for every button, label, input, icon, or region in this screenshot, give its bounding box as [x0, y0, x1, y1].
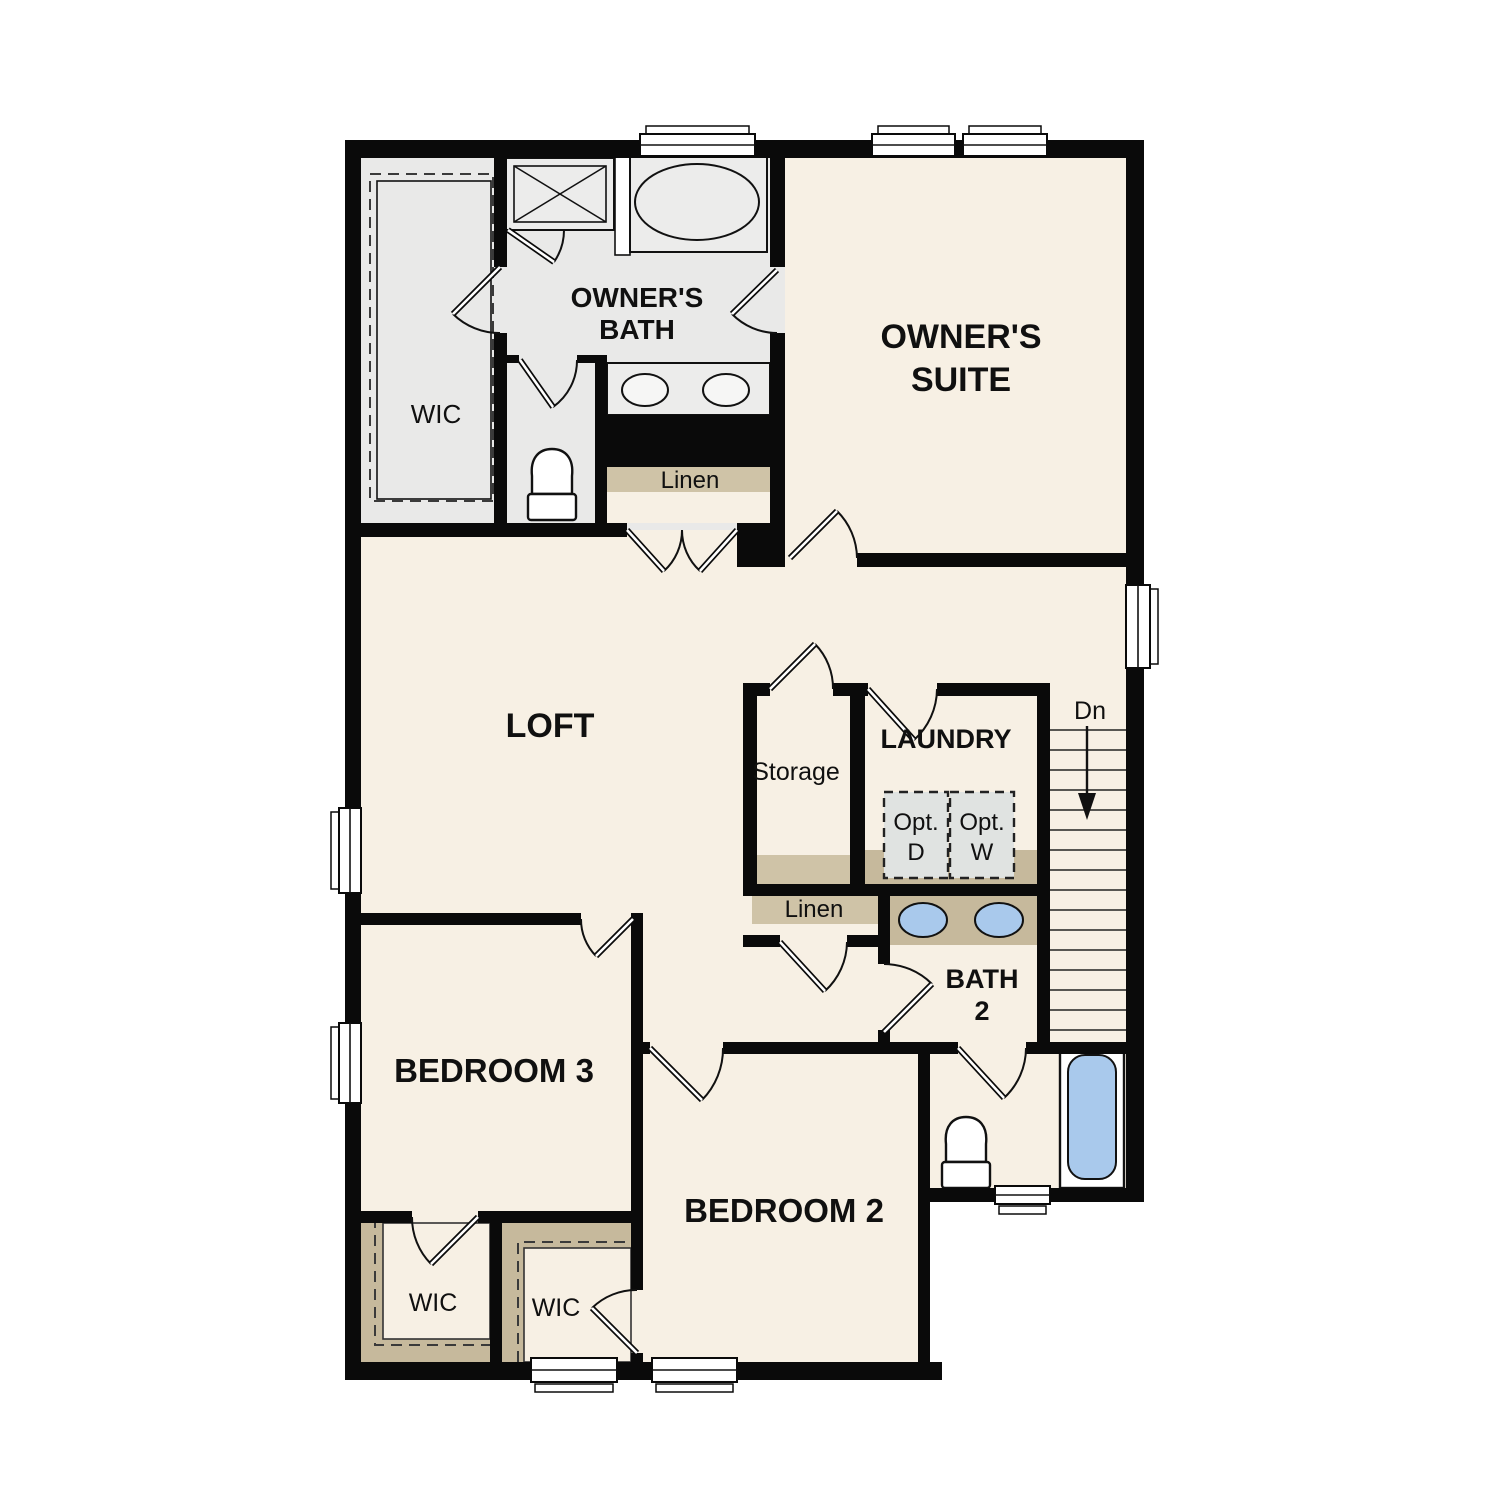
label-laundry: LAUNDRY [881, 724, 1012, 754]
window-owners-suite-left [872, 126, 955, 156]
label-bedroom2: BEDROOM 2 [684, 1192, 884, 1229]
wall-segment [345, 1362, 942, 1380]
label-storage: Storage [752, 758, 840, 786]
wall-segment [918, 1042, 930, 1380]
wall-segment [597, 415, 770, 467]
wall-segment [1026, 1042, 1144, 1054]
wall-segment [505, 355, 519, 363]
wall-segment [850, 683, 865, 896]
bath2-toilet [942, 1117, 990, 1188]
floor-plan: OWNER'S BATH OWNER'S SUITE WIC Linen LOF… [0, 0, 1500, 1500]
label-owners-suite-line1: OWNER'S [880, 318, 1041, 356]
wall-segment [643, 1042, 650, 1054]
label-linen-lower: Linen [785, 896, 844, 923]
label-wic-bedroom3: WIC [409, 1289, 458, 1317]
wall-segment [878, 1030, 890, 1044]
label-owners-bath-line2: BATH [599, 314, 675, 345]
wall-segment [595, 355, 607, 537]
wall-segment [345, 523, 627, 537]
label-loft: LOFT [506, 707, 595, 745]
label-owners-bath-line1: OWNER'S [571, 282, 704, 313]
label-owners-suite-line2: SUITE [911, 361, 1011, 399]
garden-tub [615, 155, 767, 255]
label-bath2-line1: BATH [946, 964, 1019, 994]
storage-shelf [757, 855, 850, 884]
wall-segment [577, 355, 597, 363]
wic-bedroom3-floor [383, 1223, 490, 1339]
wall-segment [494, 333, 507, 537]
window-tub [640, 126, 755, 156]
label-wic-bedroom2: WIC [532, 1294, 581, 1322]
wall-segment [631, 1353, 643, 1380]
bath2-sink-right [975, 903, 1023, 937]
wall-segment [1037, 683, 1050, 1054]
wall-segment [743, 884, 1050, 896]
label-linen-upper: Linen [661, 467, 720, 494]
label-opt-dryer-line2: D [907, 839, 924, 866]
wall-segment [490, 1211, 502, 1380]
wall-segment [631, 913, 643, 1290]
wall-segment [743, 683, 770, 696]
wall-segment [770, 140, 785, 267]
label-wic-owners: WIC [411, 399, 462, 429]
label-bedroom3: BEDROOM 3 [394, 1052, 594, 1089]
window-owners-suite-right [963, 126, 1047, 156]
linen-upper-floor [607, 492, 770, 523]
wall-segment [743, 935, 780, 947]
bath2-tub [1060, 1046, 1124, 1188]
wall-segment [857, 553, 1126, 567]
wall-segment [494, 158, 507, 267]
window-bedroom3 [331, 1023, 361, 1103]
shower [506, 158, 614, 230]
wall-segment [743, 683, 757, 896]
floor-plan-page: OWNER'S BATH OWNER'S SUITE WIC Linen LOF… [0, 0, 1500, 1500]
window-bedroom2 [652, 1358, 737, 1392]
window-loft [331, 808, 361, 893]
bath2-sink-left [899, 903, 947, 937]
wall-segment [737, 523, 785, 567]
wall-segment [833, 683, 868, 696]
label-stairs-down: Dn [1074, 697, 1106, 725]
window-bath2 [995, 1186, 1050, 1214]
wall-segment [878, 896, 890, 964]
wall-segment [345, 913, 581, 925]
window-stair-landing [1126, 585, 1158, 668]
label-bath2-line2: 2 [974, 996, 989, 1026]
wall-segment [937, 683, 1050, 696]
owners-vanity [607, 363, 770, 415]
label-opt-washer-line1: Opt. [959, 809, 1004, 836]
label-opt-dryer-line1: Opt. [893, 809, 938, 836]
linen-lower-floor [752, 924, 878, 935]
wall-segment [723, 1042, 930, 1054]
owners-toilet [528, 449, 576, 520]
wall-segment [345, 1211, 412, 1223]
label-opt-washer-line2: W [971, 839, 994, 866]
wall-segment [345, 140, 361, 1380]
window-wic-bedroom2 [531, 1358, 617, 1392]
